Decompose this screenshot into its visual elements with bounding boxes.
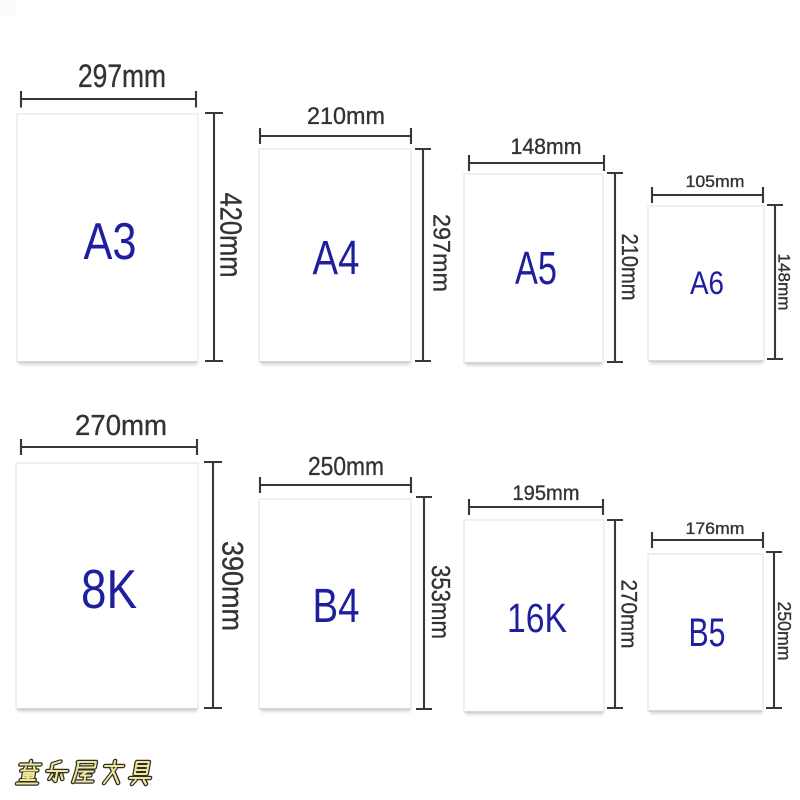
svg-text:210mm: 210mm (617, 234, 643, 301)
svg-text:B4: B4 (313, 580, 360, 633)
svg-text:8K: 8K (81, 558, 137, 620)
svg-text:390mm: 390mm (216, 541, 249, 631)
svg-text:195mm: 195mm (513, 482, 580, 505)
svg-text:A3: A3 (84, 213, 137, 271)
svg-text:353mm: 353mm (426, 565, 456, 639)
svg-text:16K: 16K (507, 595, 567, 641)
svg-text:148mm: 148mm (775, 254, 794, 311)
svg-text:105mm: 105mm (686, 172, 745, 191)
svg-text:270mm: 270mm (75, 410, 167, 442)
svg-text:297mm: 297mm (78, 58, 166, 94)
svg-text:A4: A4 (313, 232, 360, 285)
svg-text:250mm: 250mm (308, 451, 384, 481)
svg-text:148mm: 148mm (511, 134, 582, 159)
svg-text:270mm: 270mm (617, 580, 642, 649)
svg-text:250mm: 250mm (774, 602, 794, 661)
svg-text:297mm: 297mm (428, 214, 455, 292)
svg-text:A5: A5 (515, 242, 557, 294)
svg-text:B5: B5 (689, 611, 726, 655)
svg-text:176mm: 176mm (686, 519, 745, 538)
svg-text:420mm: 420mm (214, 193, 249, 278)
svg-text:A6: A6 (690, 265, 724, 301)
svg-text:210mm: 210mm (307, 103, 385, 130)
